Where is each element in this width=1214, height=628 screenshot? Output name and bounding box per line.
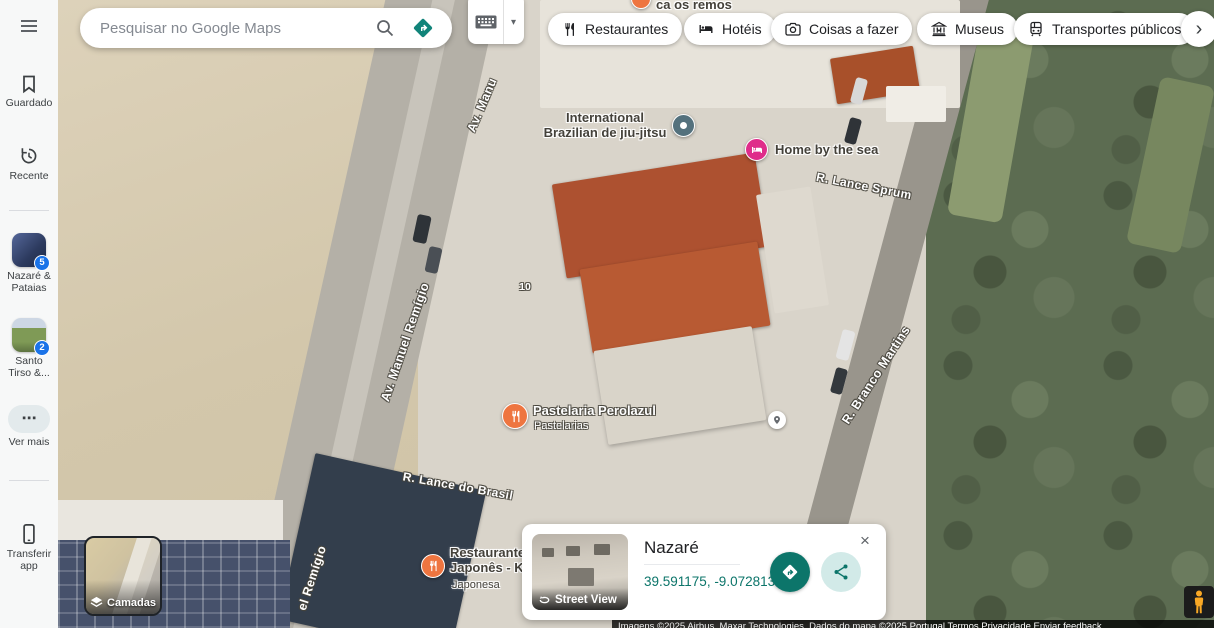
pegman-control[interactable] <box>1184 586 1214 618</box>
sidebar-divider <box>9 480 49 481</box>
chip-hoteis[interactable]: Hotéis <box>684 13 776 45</box>
poi-sublabel-restaurante: Japonesa <box>452 578 500 593</box>
place-coordinates[interactable]: 39.591175, -9.072813 <box>644 574 775 589</box>
phone-icon <box>19 523 39 545</box>
bed-icon <box>751 144 763 156</box>
shortcut-thumbnail: 5 <box>12 233 46 267</box>
poi-pin-restaurante-japones[interactable] <box>421 554 445 578</box>
poi-sublabel-pastelaria: Pastelarias <box>534 419 588 434</box>
street-view-bar: Street View <box>532 588 628 610</box>
shortcut-badge: 5 <box>34 255 50 271</box>
shortcut-label-line: Nazaré & <box>7 270 51 282</box>
poi-pin-jiu-jitsu[interactable] <box>672 114 695 137</box>
chip-label: Hotéis <box>722 21 762 37</box>
share-icon <box>832 563 850 581</box>
museum-icon <box>931 21 947 37</box>
search-bar <box>80 8 452 48</box>
shortcut-label: SantoTirso &... <box>8 355 50 379</box>
camera-icon <box>785 21 801 37</box>
poi-label-ca-os-remos: ca os remos <box>656 0 732 12</box>
chip-transportes-publicos[interactable]: Transportes públicos <box>1014 13 1195 45</box>
poi-label-jiu-jitsu: International Brazilian de jiu-jitsu <box>540 110 670 140</box>
sidebar-label-line: app <box>20 560 38 572</box>
pin-dot <box>680 122 687 129</box>
hamburger-icon <box>19 16 39 36</box>
directions-icon <box>411 16 435 40</box>
sidebar-shortcut-santo-tirso[interactable]: 2 SantoTirso &... <box>0 318 58 379</box>
shortcut-label: Nazaré &Pataias <box>7 270 51 294</box>
building-white-roof-top <box>886 86 946 122</box>
card-share-button[interactable] <box>821 552 861 592</box>
sidebar-item-recente[interactable]: Recente <box>0 145 58 182</box>
map-attribution[interactable]: Imagens ©2025 Airbus, Maxar Technologies… <box>612 620 1214 628</box>
restaurant-icon <box>427 560 439 572</box>
place-info-card: Street View Nazaré 39.591175, -9.072813 … <box>522 524 886 620</box>
poi-pin-generic[interactable] <box>768 411 786 429</box>
sidebar-item-label: Guardado <box>6 97 53 109</box>
poi-label-restaurante: Restaurante Japonês - K <box>450 545 525 575</box>
poi-label-home-by-the-sea: Home by the sea <box>775 142 878 157</box>
street-view-icon <box>538 595 551 605</box>
chip-label: Museus <box>955 21 1004 37</box>
search-input[interactable] <box>100 20 366 37</box>
chip-label: Transportes públicos <box>1052 21 1181 37</box>
restaurant-icon <box>509 410 522 423</box>
poi-label-line: International <box>540 110 670 125</box>
attribution-text: Imagens ©2025 Airbus, Maxar Technologies… <box>612 620 1214 628</box>
transit-icon <box>1028 21 1044 37</box>
layers-label-row: Camadas <box>86 596 160 609</box>
shortcut-label-line: Pataias <box>11 282 46 294</box>
layers-icon <box>90 596 103 609</box>
sidebar-label-line: Transferir <box>7 548 52 560</box>
card-close-button[interactable]: × <box>854 530 876 552</box>
card-directions-button[interactable] <box>770 552 810 592</box>
thumbnail-door <box>568 568 594 586</box>
thumbnail-window <box>566 546 580 556</box>
sidebar-item-label: Ver mais <box>9 436 50 448</box>
sidebar-item-transferir-app[interactable]: Transferirapp <box>0 523 58 572</box>
layers-label: Camadas <box>107 597 156 609</box>
poi-label-line: Brazilian de jiu-jitsu <box>540 125 670 140</box>
sidebar: Guardado Recente 5 Nazaré &Pataias 2 San… <box>0 0 58 628</box>
sidebar-item-ver-mais[interactable]: ⋯ Ver mais <box>0 405 58 448</box>
more-icon: ⋯ <box>8 405 50 433</box>
restaurant-icon <box>562 22 577 37</box>
caret-down-icon: ▾ <box>511 17 516 28</box>
building-number-label: 10 <box>519 281 531 293</box>
directions-icon <box>779 561 801 583</box>
poi-label-line: Restaurante <box>450 545 525 560</box>
pegman-icon <box>1192 590 1206 614</box>
shortcut-badge: 2 <box>34 340 50 356</box>
chip-label: Coisas a fazer <box>809 21 898 37</box>
google-maps-screen: R. Lance Sprum Av. Manu Av. Manuel Remíg… <box>0 0 1214 628</box>
chip-restaurantes[interactable]: Restaurantes <box>548 13 682 45</box>
chevron-right-icon: › <box>1196 18 1203 41</box>
keyboard-button[interactable] <box>468 0 504 44</box>
sidebar-item-label: Transferirapp <box>7 548 52 572</box>
street-view-label: Street View <box>555 594 617 606</box>
search-icon <box>375 18 395 38</box>
chip-coisas-a-fazer[interactable]: Coisas a fazer <box>771 13 912 45</box>
chips-scroll-right-button[interactable]: › <box>1181 11 1214 47</box>
thumbnail-window <box>542 548 554 557</box>
chip-label: Restaurantes <box>585 21 668 37</box>
thumbnail-window <box>594 544 610 555</box>
card-divider <box>644 564 740 565</box>
sidebar-item-guardado[interactable]: Guardado <box>0 74 58 109</box>
poi-pin-pastelaria[interactable] <box>502 403 528 429</box>
place-title: Nazaré <box>644 538 699 558</box>
history-icon <box>18 145 40 167</box>
close-icon: × <box>860 531 870 551</box>
keyboard-icon <box>475 15 497 29</box>
search-button[interactable] <box>366 11 404 45</box>
poi-label-line: Japonês - K <box>450 560 525 575</box>
shortcut-label-line: Santo <box>15 355 42 367</box>
poi-pin-home-by-the-sea[interactable] <box>745 138 768 161</box>
poi-label-pastelaria: Pastelaria Perolazul <box>533 403 656 418</box>
input-tools-caret-button[interactable]: ▾ <box>504 0 523 44</box>
directions-button[interactable] <box>404 11 442 45</box>
shortcut-thumbnail: 2 <box>12 318 46 352</box>
place-icon <box>772 415 782 425</box>
street-view-thumbnail[interactable]: Street View <box>532 534 628 610</box>
sidebar-shortcut-nazare[interactable]: 5 Nazaré &Pataias <box>0 233 58 294</box>
layers-button[interactable]: Camadas <box>84 536 162 616</box>
shortcut-label-line: Tirso &... <box>8 367 50 379</box>
chip-museus[interactable]: Museus <box>917 13 1018 45</box>
bed-icon <box>698 21 714 37</box>
menu-button[interactable] <box>0 16 58 36</box>
sidebar-item-label: Recente <box>9 170 48 182</box>
input-tools-button: ▾ <box>468 0 524 44</box>
sidebar-divider <box>9 210 49 211</box>
bookmark-icon <box>19 74 39 94</box>
